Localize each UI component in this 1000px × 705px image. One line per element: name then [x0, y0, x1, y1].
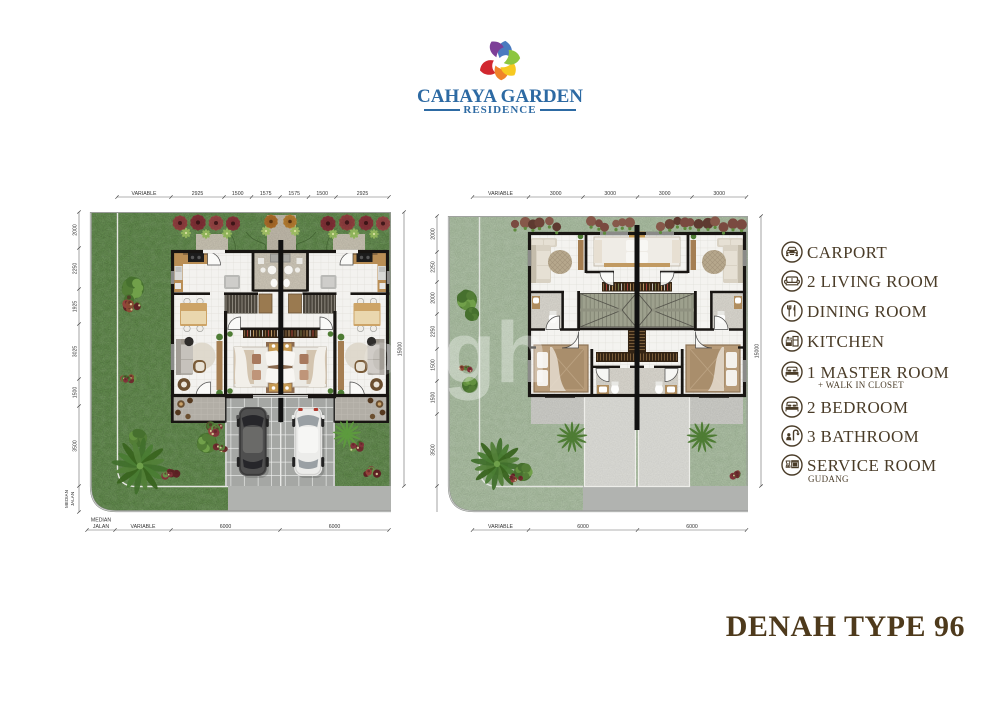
svg-text:2000: 2000 — [72, 224, 78, 236]
svg-text:2000: 2000 — [430, 228, 436, 240]
svg-text:2925: 2925 — [357, 191, 369, 197]
svg-text:6000: 6000 — [220, 524, 232, 530]
svg-text:1500: 1500 — [430, 359, 436, 371]
svg-text:VARIABLE: VARIABLE — [131, 524, 157, 530]
svg-text:VARIABLE: VARIABLE — [132, 191, 158, 197]
svg-text:6000: 6000 — [577, 524, 589, 530]
svg-text:MEDIAN: MEDIAN — [91, 518, 111, 524]
svg-text:1500: 1500 — [316, 191, 328, 197]
svg-text:o: o — [362, 321, 399, 388]
svg-text:3000: 3000 — [550, 191, 562, 197]
svg-text:JALAN: JALAN — [93, 524, 109, 530]
svg-text:3500: 3500 — [430, 444, 436, 456]
svg-text:6000: 6000 — [686, 524, 698, 530]
svg-text:gh: gh — [443, 305, 548, 401]
svg-text:1575: 1575 — [288, 191, 300, 197]
svg-text:3500: 3500 — [72, 440, 78, 452]
svg-text:3000: 3000 — [604, 191, 616, 197]
svg-text:15000: 15000 — [754, 344, 760, 359]
svg-text:1925: 1925 — [72, 301, 78, 313]
svg-text:VARIABLE: VARIABLE — [488, 524, 514, 530]
svg-text:1575: 1575 — [260, 191, 272, 197]
svg-text:3025: 3025 — [72, 346, 78, 358]
svg-text:2250: 2250 — [430, 326, 436, 338]
svg-text:2925: 2925 — [192, 191, 204, 197]
svg-text:VARIABLE: VARIABLE — [488, 191, 514, 197]
svg-text:6000: 6000 — [329, 524, 341, 530]
svg-text:3000: 3000 — [659, 191, 671, 197]
svg-text:1500: 1500 — [232, 191, 244, 197]
svg-text:JALAN: JALAN — [70, 492, 75, 506]
svg-text:2250: 2250 — [430, 261, 436, 273]
svg-text:1500: 1500 — [72, 387, 78, 399]
svg-text:2250: 2250 — [72, 263, 78, 275]
svg-text:MEDIAN: MEDIAN — [64, 490, 69, 508]
svg-text:1500: 1500 — [430, 392, 436, 404]
svg-text:2000: 2000 — [430, 292, 436, 304]
svg-text:3000: 3000 — [713, 191, 725, 197]
